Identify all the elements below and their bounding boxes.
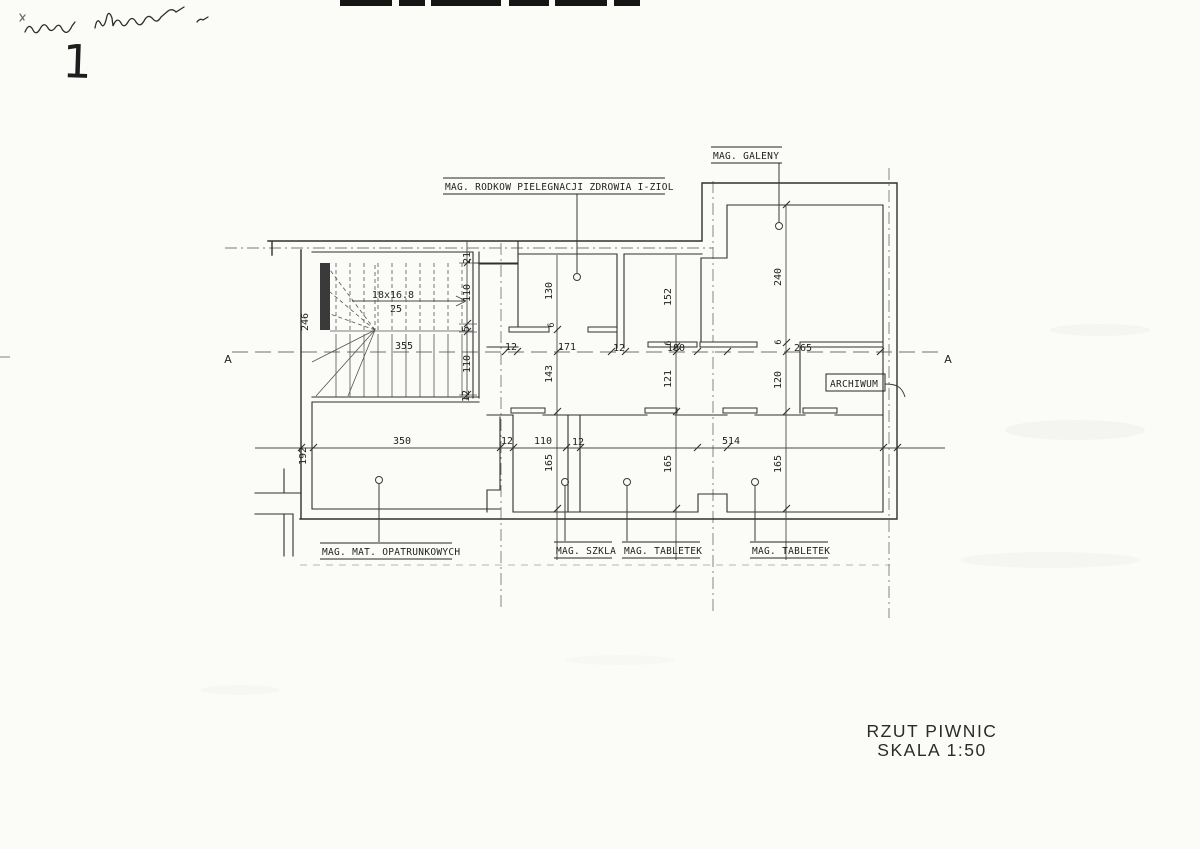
- room-label-pielegnacji: MAG. RODKOW PIELEGNACJI ZDROWIA I-ZIOL: [445, 182, 674, 193]
- dim-12-a: 12: [461, 390, 472, 402]
- smudge: [1050, 324, 1150, 336]
- floor-plan-drawing: 1: [0, 0, 1200, 849]
- scanned-floor-plan-sheet: 1: [0, 0, 1200, 849]
- handwriting-stroke: [95, 7, 184, 28]
- staircase: [312, 263, 473, 397]
- dim-5: 5: [461, 326, 472, 332]
- stair-formula-top: 18x16.8: [372, 290, 414, 301]
- door-sill: [509, 327, 549, 332]
- lower-left-room-walls: [312, 397, 500, 509]
- dim-165-c: 165: [773, 455, 784, 473]
- dim-152: 152: [663, 288, 674, 306]
- left-entry-walls: [255, 469, 301, 556]
- smudge: [1005, 420, 1145, 440]
- sheet-number: 1: [62, 34, 93, 89]
- dim-6-a: 6: [547, 322, 557, 327]
- dim-6-c: 6: [774, 339, 784, 344]
- dim-171: 171: [558, 342, 576, 353]
- dim-12-e: 12: [572, 437, 584, 448]
- handwriting-stroke: [25, 22, 75, 33]
- dim-110-b: 110: [462, 355, 473, 373]
- handwritten-note: [20, 7, 208, 33]
- handwriting-stroke: [197, 17, 208, 22]
- dim-514: 514: [722, 436, 740, 447]
- archiwum-leader-curve: [885, 384, 905, 397]
- dim-143: 143: [544, 365, 555, 383]
- dim-265: 265: [794, 343, 812, 354]
- leader-dot: [376, 477, 383, 484]
- walls: [255, 183, 897, 556]
- handwriting-stroke: [20, 14, 25, 21]
- section-mark-right: A: [944, 353, 952, 366]
- corridor-top-wall: [487, 347, 800, 413]
- leader-dot: [624, 479, 631, 486]
- dim-12-b: 12: [505, 342, 517, 353]
- dim-350: 350: [393, 436, 411, 447]
- drawing-title: RZUT PIWNIC: [867, 721, 998, 741]
- drawing-scale: SKALA 1:50: [877, 740, 986, 760]
- stair-winder-lines: [312, 330, 375, 396]
- leader-dot: [752, 479, 759, 486]
- room-label-tabletek-1: MAG. TABLETEK: [624, 546, 702, 557]
- dim-6-b: 6: [664, 340, 674, 345]
- room-label-tabletek-2: MAG. TABLETEK: [752, 546, 830, 557]
- dim-ticks-bottom-chain: [298, 444, 901, 451]
- dim-21: 21: [462, 252, 473, 264]
- door-sill: [511, 408, 545, 413]
- galeny-walls: [702, 205, 883, 512]
- dim-165-b: 165: [663, 455, 674, 473]
- smudge: [565, 655, 675, 665]
- dim-192: 192: [298, 447, 309, 465]
- room-label-szkla: MAG. SZKLA: [556, 546, 616, 557]
- leader-dot: [776, 223, 783, 230]
- dim-240: 240: [773, 268, 784, 286]
- dim-165-a: 165: [544, 454, 555, 472]
- dim-121: 121: [663, 370, 674, 388]
- room-label-archiwum: ARCHIWUM: [830, 379, 878, 390]
- dim-246: 246: [300, 313, 311, 331]
- dim-130: 130: [544, 282, 555, 300]
- stair-wall-fill: [320, 263, 330, 330]
- room-label-opatrunkowych: MAG. MAT. OPATRUNKOWYCH: [322, 547, 460, 558]
- smudge: [960, 552, 1140, 568]
- door-sill: [723, 408, 757, 413]
- dim-355: 355: [395, 341, 413, 352]
- dim-110-c: 110: [534, 436, 552, 447]
- section-mark-left: A: [224, 353, 232, 366]
- room-label-galeny: MAG. GALENY: [713, 151, 779, 162]
- door-sills: [509, 327, 883, 413]
- door-sill: [803, 408, 837, 413]
- door-sill: [645, 408, 677, 413]
- dim-12-c: 12: [613, 343, 625, 354]
- stair-winder-lines-dashed: [330, 270, 375, 330]
- door-sill: [588, 327, 617, 332]
- door-sill: [800, 342, 883, 347]
- smudge: [200, 685, 280, 695]
- door-sill: [700, 342, 757, 347]
- dim-110-a: 110: [462, 284, 473, 302]
- leader-dot: [574, 274, 581, 281]
- stair-formula-bottom: 25: [390, 304, 402, 315]
- dim-120: 120: [773, 371, 784, 389]
- stair-enclosure-walls: [312, 252, 518, 398]
- dim-12-d: 12: [501, 436, 513, 447]
